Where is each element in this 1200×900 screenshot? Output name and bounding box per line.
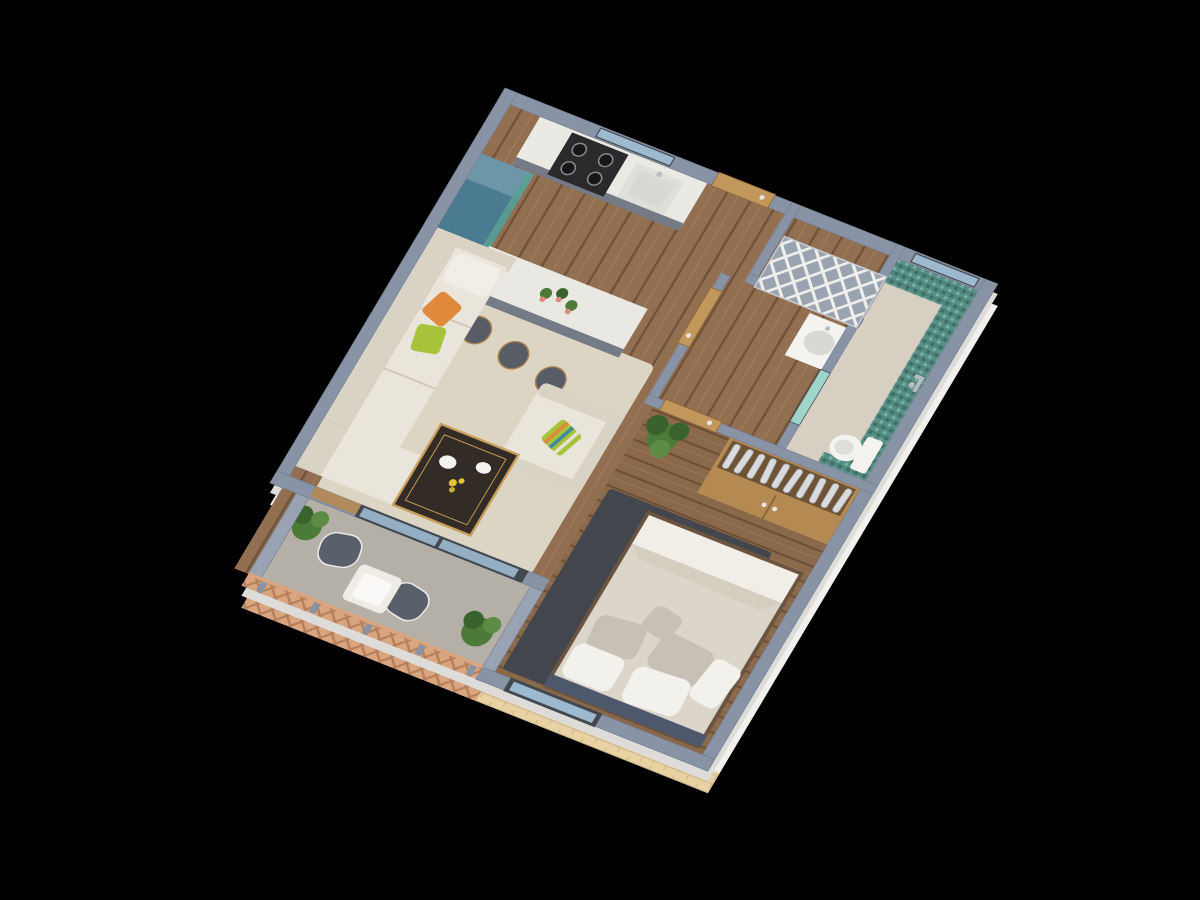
floorplan-stage: 3D axonometric floor plan render of a on… — [0, 0, 1200, 900]
floorplan-render: 3D axonometric floor plan render of a on… — [0, 0, 1200, 900]
